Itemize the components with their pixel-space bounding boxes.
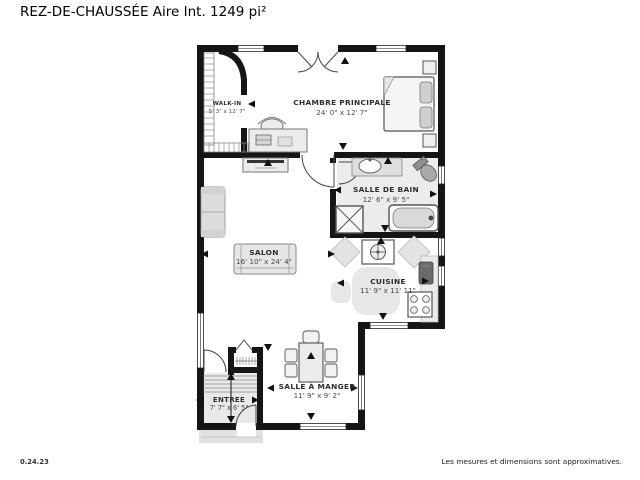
wall-segment xyxy=(334,152,445,158)
page-title: REZ-DE-CHAUSSÉE Aire Int. 1249 pi² xyxy=(20,3,266,20)
pillow xyxy=(420,82,432,103)
dining-chair xyxy=(285,364,297,377)
wall-segment xyxy=(197,369,204,375)
window xyxy=(439,238,445,256)
room-label-cuisine: CUISINE xyxy=(370,277,406,286)
dining-chair xyxy=(285,349,297,362)
window xyxy=(300,424,346,430)
window xyxy=(198,313,204,368)
window xyxy=(238,46,264,52)
shower xyxy=(336,206,363,233)
pillow xyxy=(420,107,432,128)
bathtub xyxy=(389,205,438,231)
room-dims-salle-de-bain: 12' 6" x 9' 5" xyxy=(363,195,410,204)
wall-segment xyxy=(197,423,236,430)
wall-segment xyxy=(330,158,336,163)
footer-version: 0.24.23 xyxy=(20,458,49,466)
footer-disclaimer: Les mesures et dimensions sont approxima… xyxy=(441,457,622,466)
room-dims-walk-in: 5' 3" x 12' 7" xyxy=(209,109,246,115)
page-background xyxy=(0,0,640,480)
dining-chair xyxy=(325,349,337,362)
room-dims-cuisine: 11' 9" x 11' 11" xyxy=(360,286,416,295)
dining-chair xyxy=(303,331,319,343)
wall-segment xyxy=(408,322,445,329)
wall-segment xyxy=(438,256,445,266)
window xyxy=(359,375,365,410)
wall-segment xyxy=(438,184,445,238)
room-label-chambre-principale: CHAMBRE PRINCIPALE xyxy=(293,98,390,107)
wall-segment xyxy=(358,322,365,375)
window xyxy=(439,166,445,184)
room-label-walk-in: WALK-IN xyxy=(213,101,242,107)
stove xyxy=(408,292,432,317)
nightstand xyxy=(423,134,436,147)
wall-segment xyxy=(346,423,365,430)
wall-segment xyxy=(264,45,298,52)
room-label-entree: ENTREE xyxy=(213,396,245,404)
room-label-salle-a-manger: SALLE À MANGER xyxy=(279,382,356,391)
window xyxy=(376,46,406,52)
room-label-salle-de-bain: SALLE DE BAIN xyxy=(353,185,419,194)
window xyxy=(370,323,408,329)
wall-segment xyxy=(241,79,247,95)
room-label-salon: SALON xyxy=(249,248,278,257)
wall-segment xyxy=(330,189,336,238)
floor-plan-canvas: REZ-DE-CHAUSSÉE Aire Int. 1249 pi² 0.24.… xyxy=(0,0,640,480)
room-dims-salle-a-manger: 11' 9" x 9' 2" xyxy=(294,391,341,400)
porch-door-gap xyxy=(237,430,256,437)
room-dims-salon: 16' 10" x 24' 4" xyxy=(236,257,292,266)
wall-segment xyxy=(257,347,263,430)
armchair xyxy=(201,187,225,237)
wall-segment xyxy=(438,45,445,166)
room-dims-entree: 7' 7" x 6' 5" xyxy=(210,404,249,412)
nightstand xyxy=(423,61,436,74)
room-dims-chambre-principale: 24' 0" x 12' 7" xyxy=(316,108,367,117)
dining-chair xyxy=(325,364,337,377)
dining-table xyxy=(299,343,323,382)
wall-segment xyxy=(197,152,300,158)
window xyxy=(439,266,445,286)
wall-segment xyxy=(197,45,204,313)
wall-segment xyxy=(338,45,376,52)
